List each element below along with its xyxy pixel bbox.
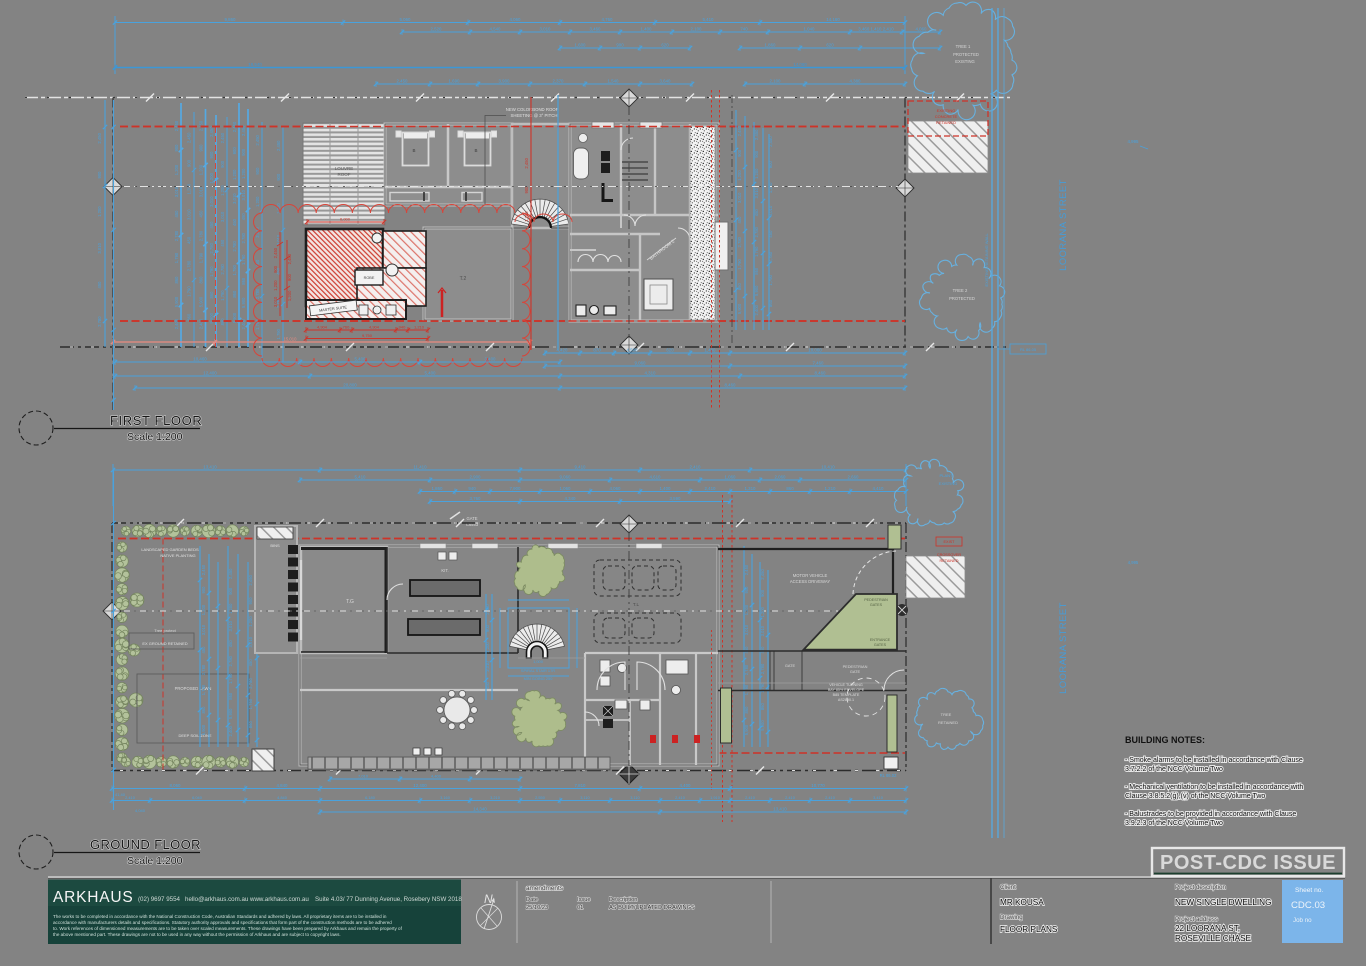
svg-text:PROTECTED: PROTECTED (953, 52, 979, 57)
svg-text:900: 900 (187, 159, 192, 167)
svg-text:2,400: 2,400 (199, 318, 204, 329)
svg-text:3,010: 3,010 (187, 209, 192, 220)
svg-text:1,200: 1,200 (232, 169, 237, 180)
svg-text:Issue: Issue (577, 897, 591, 903)
svg-text:(02) 9697 9554: (02) 9697 9554 (138, 896, 181, 903)
svg-text:1,200: 1,200 (97, 206, 102, 217)
svg-text:5,400: 5,400 (355, 356, 367, 361)
svg-text:3,010: 3,010 (737, 192, 742, 203)
svg-text:2,450: 2,450 (485, 604, 490, 615)
svg-text:860: 860 (241, 277, 246, 285)
svg-text:2,550: 2,550 (535, 795, 546, 800)
svg-text:NATIVE PLANTING: NATIVE PLANTING (160, 553, 195, 558)
svg-text:22 LOORANA ST,: 22 LOORANA ST, (1175, 924, 1240, 933)
svg-text:450: 450 (485, 681, 490, 689)
svg-text:3,640: 3,640 (660, 78, 672, 83)
svg-text:5,900: 5,900 (760, 720, 765, 731)
svg-text:Date: Date (526, 897, 538, 903)
svg-text:1,400: 1,400 (641, 26, 653, 31)
svg-text:CONCRETE: CONCRETE (935, 114, 958, 119)
svg-text:8,460: 8,460 (815, 370, 827, 375)
svg-text:4,904: 4,904 (369, 324, 380, 329)
svg-text:6,000: 6,000 (340, 216, 351, 221)
svg-text:900: 900 (97, 171, 102, 179)
svg-text:LOUVRE: LOUVRE (335, 166, 354, 171)
svg-text:860: 860 (209, 291, 214, 299)
svg-text:- Balustrades to be provided i: - Balustrades to be provided in accordan… (1125, 811, 1296, 818)
svg-text:5,900: 5,900 (199, 296, 204, 307)
svg-text:5,900: 5,900 (744, 724, 749, 735)
svg-text:DEEP SOIL ZONE: DEEP SOIL ZONE (178, 733, 211, 738)
svg-text:13,410: 13,410 (203, 464, 217, 469)
svg-text:4,995: 4,995 (1128, 560, 1139, 565)
svg-text:25/10/23: 25/10/23 (526, 905, 548, 911)
svg-text:1,860: 1,860 (765, 42, 777, 47)
svg-text:860: 860 (228, 692, 233, 700)
svg-text:2,900: 2,900 (470, 474, 482, 479)
svg-text:1,790: 1,790 (232, 264, 237, 275)
svg-text:Scale 1:200: Scale 1:200 (127, 431, 183, 443)
svg-text:1,790: 1,790 (199, 252, 204, 263)
svg-text:Tree protect: Tree protect (154, 628, 176, 633)
svg-text:3,010: 3,010 (174, 186, 179, 197)
svg-text:13,410: 13,410 (773, 806, 787, 811)
svg-text:860: 860 (786, 486, 794, 491)
svg-text:LOORANA STREET: LOORANA STREET (1058, 602, 1069, 694)
svg-text:860: 860 (199, 276, 204, 284)
svg-text:EX GROUND RETAINED: EX GROUND RETAINED (142, 641, 187, 646)
svg-text:1,790: 1,790 (754, 246, 759, 257)
svg-text:2,450: 2,450 (248, 574, 253, 585)
svg-text:7,460: 7,460 (813, 360, 825, 365)
svg-text:10,060: 10,060 (808, 347, 822, 352)
svg-text:41,40: 41,40 (115, 792, 126, 797)
svg-text:4,420: 4,420 (557, 347, 569, 352)
svg-text:AS BUILT/UPDATED DRAWINGS: AS BUILT/UPDATED DRAWINGS (609, 905, 695, 911)
svg-text:2,450: 2,450 (737, 125, 742, 136)
svg-text:940: 940 (468, 486, 476, 491)
svg-text:900: 900 (616, 42, 624, 47)
svg-text:2,410: 2,410 (705, 486, 717, 491)
svg-text:450: 450 (199, 210, 204, 218)
svg-text:3,010: 3,010 (540, 26, 552, 31)
svg-text:900: 900 (287, 273, 292, 281)
svg-text:2,450: 2,450 (744, 564, 749, 575)
svg-text:450: 450 (201, 646, 206, 654)
svg-text:2,780: 2,780 (174, 230, 179, 241)
svg-text:BUILDING NOTES:: BUILDING NOTES: (1125, 735, 1205, 745)
svg-text:SHEETING @ 3° PITCH: SHEETING @ 3° PITCH (511, 113, 558, 118)
svg-text:ACCESS DRIVEWAY: ACCESS DRIVEWAY (790, 579, 830, 584)
svg-text:9,860: 9,860 (225, 17, 237, 22)
svg-text:10,460: 10,460 (193, 356, 207, 361)
svg-text:EXISTING: EXISTING (955, 59, 975, 64)
svg-text:2,450: 2,450 (760, 569, 765, 580)
svg-text:4,410: 4,410 (873, 486, 885, 491)
svg-text:2,100: 2,100 (691, 26, 703, 31)
svg-text:4,060: 4,060 (610, 486, 622, 491)
svg-text:10,770: 10,770 (811, 783, 825, 788)
svg-text:1,200: 1,200 (174, 164, 179, 175)
svg-text:1,200: 1,200 (287, 290, 292, 301)
svg-text:450: 450 (760, 646, 765, 654)
svg-text:870: 870 (593, 347, 601, 352)
svg-text:5,900: 5,900 (241, 297, 246, 308)
svg-text:3,010: 3,010 (97, 242, 102, 253)
svg-text:860: 860 (174, 276, 179, 284)
svg-text:5,900: 5,900 (737, 303, 742, 314)
svg-text:Project address: Project address (1175, 916, 1218, 923)
svg-text:900: 900 (209, 151, 214, 159)
svg-text:3,210: 3,210 (490, 795, 501, 800)
svg-text:B85 TEMPLATE: B85 TEMPLATE (833, 693, 860, 697)
svg-text:9,060: 9,060 (560, 474, 572, 479)
svg-text:450: 450 (754, 209, 759, 217)
svg-text:3.9.2.3 of the NCC Volume Two: 3.9.2.3 of the NCC Volume Two (1125, 820, 1223, 827)
svg-text:3,010: 3,010 (248, 636, 253, 647)
svg-text:2,450: 2,450 (201, 564, 206, 575)
svg-text:RETAINED: RETAINED (940, 559, 959, 563)
svg-text:900: 900 (768, 161, 773, 169)
svg-text:940: 940 (399, 324, 406, 329)
svg-text:GATES: GATES (870, 603, 883, 607)
svg-text:1,790: 1,790 (187, 286, 192, 297)
svg-text:4,400: 4,400 (680, 783, 692, 788)
svg-text:Suite 4.03/ 77 Dunning Avenue,: Suite 4.03/ 77 Dunning Avenue, Rosebery … (315, 896, 462, 903)
svg-text:4,060: 4,060 (510, 17, 522, 22)
svg-text:N: N (484, 892, 493, 906)
svg-text:3,010: 3,010 (228, 620, 233, 631)
svg-text:3,010: 3,010 (241, 189, 246, 200)
svg-text:GATE: GATE (785, 663, 796, 668)
svg-text:860: 860 (754, 267, 759, 275)
svg-text:7,900: 7,900 (510, 486, 522, 491)
svg-text:2,410: 2,410 (690, 464, 702, 469)
svg-text:900: 900 (232, 147, 237, 155)
svg-text:2,400: 2,400 (241, 318, 246, 329)
svg-text:3.7.2.2 of the NCC Volume Two: 3.7.2.2 of the NCC Volume Two (1125, 766, 1223, 773)
svg-text:6,040: 6,040 (192, 795, 203, 800)
svg-text:T.L: T.L (633, 602, 640, 607)
svg-text:2,410: 2,410 (125, 795, 136, 800)
svg-text:9,060: 9,060 (635, 360, 647, 365)
svg-text:3,010: 3,010 (232, 193, 237, 204)
svg-text:900: 900 (760, 589, 765, 597)
svg-text:EXISTING: EXISTING (939, 481, 958, 486)
svg-text:GATE: GATE (850, 669, 861, 674)
svg-text:4,904: 4,904 (317, 324, 328, 329)
svg-text:LOORANA STREET: LOORANA STREET (1058, 179, 1069, 271)
svg-text:450: 450 (248, 659, 253, 667)
svg-text:ENTRANCE: ENTRANCE (870, 638, 891, 642)
svg-text:3,160: 3,160 (440, 795, 451, 800)
svg-text:2,780: 2,780 (737, 236, 742, 247)
svg-text:2,520: 2,520 (431, 26, 443, 31)
svg-text:2,100: 2,100 (770, 78, 782, 83)
svg-text:900: 900 (248, 597, 253, 605)
svg-text:hello@arkhaus.com.au: hello@arkhaus.com.au (185, 896, 249, 903)
svg-text:2,450: 2,450 (768, 136, 773, 147)
svg-text:860: 860 (201, 706, 206, 714)
svg-text:1,200: 1,200 (524, 211, 529, 222)
svg-text:1,540: 1,540 (608, 78, 620, 83)
svg-text:450: 450 (241, 213, 246, 221)
svg-text:1,040: 1,040 (804, 26, 816, 31)
svg-text:4,840: 4,840 (277, 783, 289, 788)
svg-text:TREE: TREE (941, 712, 952, 717)
svg-text:The works to be completed in a: The works to be completed in accordance … (53, 914, 387, 919)
svg-text:PLANT: PLANT (940, 473, 953, 478)
svg-text:PEDESTRIAN: PEDESTRIAN (864, 598, 888, 602)
svg-text:2,660: 2,660 (848, 474, 860, 479)
svg-text:TREE 1: TREE 1 (956, 44, 971, 49)
svg-text:450: 450 (209, 221, 214, 229)
svg-text:VEHICLE TURNING: VEHICLE TURNING (829, 683, 863, 687)
svg-text:Project description: Project description (1175, 884, 1226, 891)
svg-text:CROSSOVER: CROSSOVER (937, 553, 962, 557)
svg-text:2,450: 2,450 (524, 157, 529, 168)
svg-text:RETAINED: RETAINED (936, 120, 956, 125)
svg-text:1,790: 1,790 (241, 254, 246, 265)
svg-text:1,790: 1,790 (276, 328, 281, 339)
svg-text:FIRST FLOOR: FIRST FLOOR (110, 413, 202, 428)
svg-text:7,810: 7,810 (575, 783, 587, 788)
svg-text:2,780: 2,780 (241, 232, 246, 243)
svg-text:7,010: 7,010 (358, 773, 369, 778)
svg-text:3,110: 3,110 (580, 795, 590, 800)
svg-text:18,540: 18,540 (248, 62, 262, 67)
svg-text:900: 900 (744, 586, 749, 594)
svg-text:3,460: 3,460 (590, 26, 602, 31)
svg-text:3,010: 3,010 (744, 624, 749, 635)
svg-text:6,180: 6,180 (365, 795, 376, 800)
svg-text:2,400: 2,400 (228, 725, 233, 736)
svg-text:2,450: 2,450 (97, 132, 102, 143)
svg-text:4,040: 4,040 (135, 808, 146, 813)
svg-text:12,400: 12,400 (203, 370, 217, 375)
svg-text:- Smoke alarms to be installed: - Smoke alarms to be installed in accord… (1125, 757, 1303, 764)
svg-text:1,200: 1,200 (760, 606, 765, 617)
svg-text:2,450: 2,450 (754, 129, 759, 140)
svg-text:1,200: 1,200 (273, 280, 278, 291)
svg-text:BAY 85% ENVELOPE: BAY 85% ENVELOPE (828, 688, 865, 692)
svg-text:900: 900 (273, 265, 278, 273)
svg-text:4,310: 4,310 (645, 370, 657, 375)
svg-text:5,900: 5,900 (228, 708, 233, 719)
svg-text:5,400: 5,400 (425, 370, 437, 375)
svg-text:2,410: 2,410 (675, 795, 686, 800)
svg-text:4,060: 4,060 (916, 26, 928, 31)
svg-text:CDC.03: CDC.03 (1291, 900, 1325, 911)
svg-text:amendments: amendments (526, 885, 563, 892)
svg-text:2,450: 2,450 (220, 132, 225, 143)
svg-text:860: 860 (248, 721, 253, 729)
svg-text:1,200: 1,200 (754, 168, 759, 179)
svg-text:2,780: 2,780 (232, 240, 237, 251)
svg-text:NEW SINGLE DWELLING: NEW SINGLE DWELLING (1175, 898, 1271, 907)
svg-text:1,200: 1,200 (201, 604, 206, 615)
svg-text:1,860: 1,860 (432, 486, 444, 491)
svg-text:2,450: 2,450 (187, 132, 192, 143)
svg-text:4,760: 4,760 (602, 17, 614, 22)
svg-text:450: 450 (768, 230, 773, 238)
svg-text:860: 860 (737, 283, 742, 291)
svg-text:1,200: 1,200 (485, 642, 490, 653)
svg-text:900: 900 (228, 587, 233, 595)
svg-text:1,200: 1,200 (187, 183, 192, 194)
svg-text:900: 900 (276, 173, 281, 181)
svg-text:3,010: 3,010 (760, 625, 765, 636)
svg-text:4,610: 4,610 (650, 474, 662, 479)
svg-text:1,000: 1,000 (533, 659, 544, 664)
svg-text:5,900: 5,900 (754, 285, 759, 296)
svg-text:Scale 1:200: Scale 1:200 (127, 855, 183, 867)
svg-text:2,060: 2,060 (775, 474, 787, 479)
svg-text:AS2890.1: AS2890.1 (838, 698, 854, 702)
svg-text:1,200: 1,200 (768, 182, 773, 193)
svg-text:860: 860 (768, 299, 773, 307)
svg-text:BINS: BINS (270, 543, 280, 548)
svg-text:3,460 1,410 2,410: 3,460 1,410 2,410 (858, 26, 894, 31)
svg-text:2,410: 2,410 (745, 795, 756, 800)
svg-text:1,200: 1,200 (255, 196, 260, 207)
svg-text:1,400: 1,400 (705, 347, 717, 352)
svg-text:2,780: 2,780 (754, 226, 759, 237)
svg-text:1,200: 1,200 (199, 164, 204, 175)
svg-text:www.arkhaus.com.au: www.arkhaus.com.au (249, 896, 309, 903)
svg-text:4,400: 4,400 (431, 773, 442, 778)
svg-text:1,200: 1,200 (248, 616, 253, 627)
svg-text:1,790: 1,790 (228, 673, 233, 684)
svg-text:B: B (474, 148, 477, 153)
svg-text:15,010: 15,010 (284, 336, 297, 341)
svg-text:5,900: 5,900 (209, 312, 214, 323)
svg-text:1,060: 1,060 (560, 486, 572, 491)
svg-text:RL 86.05: RL 86.05 (1020, 347, 1037, 352)
svg-text:2,780: 2,780 (201, 664, 206, 675)
svg-text:RETAINED: RETAINED (938, 720, 958, 725)
svg-text:5,410: 5,410 (355, 474, 367, 479)
svg-text:14,160: 14,160 (826, 17, 840, 22)
svg-text:RL 86.02: RL 86.02 (880, 773, 898, 778)
svg-text:3,110: 3,110 (630, 795, 640, 800)
svg-text:B: B (412, 148, 415, 153)
svg-text:SPIRAL STAIR 17R: SPIRAL STAIR 17R (521, 668, 555, 673)
svg-text:1,200: 1,200 (241, 168, 246, 179)
svg-text:4,340: 4,340 (565, 496, 577, 501)
svg-text:Clause 3.8.5.2(g),(v) of the N: Clause 3.8.5.2(g),(v) of the NCC Volume … (1125, 793, 1265, 800)
svg-text:2,780: 2,780 (187, 260, 192, 271)
svg-text:8,460: 8,460 (725, 382, 737, 387)
svg-text:Description: Description (609, 897, 637, 903)
svg-text:1,310: 1,310 (745, 486, 757, 491)
svg-text:3,010: 3,010 (201, 624, 206, 635)
svg-text:8,060: 8,060 (170, 783, 182, 788)
svg-text:900: 900 (737, 149, 742, 157)
svg-text:2,450: 2,450 (276, 140, 281, 151)
svg-text:9,750: 9,750 (362, 333, 373, 338)
svg-text:3,760: 3,760 (470, 496, 482, 501)
svg-text:1,790: 1,790 (201, 684, 206, 695)
svg-text:860: 860 (760, 703, 765, 711)
svg-text:20,800: 20,800 (343, 382, 357, 387)
svg-text:1,790: 1,790 (744, 684, 749, 695)
svg-text:the above mentioned part. Thes: the above mentioned part. These drawings… (53, 932, 341, 937)
svg-text:2,370: 2,370 (553, 78, 565, 83)
svg-text:3,010: 3,010 (485, 661, 490, 672)
svg-text:EXISTING: EXISTING (937, 108, 956, 113)
svg-text:1,400: 1,400 (660, 486, 672, 491)
svg-text:2,780: 2,780 (744, 664, 749, 675)
svg-text:14,060: 14,060 (793, 62, 807, 67)
svg-text:620: 620 (666, 347, 674, 352)
svg-text:KIT.: KIT. (441, 568, 448, 573)
svg-text:1,060: 1,060 (725, 474, 737, 479)
svg-text:3,010: 3,010 (768, 205, 773, 216)
svg-text:T.G: T.G (346, 599, 354, 605)
svg-text:860: 860 (232, 290, 237, 298)
svg-text:900: 900 (485, 624, 490, 632)
svg-text:LANDSCAPED GARDEN BEDS: LANDSCAPED GARDEN BEDS (141, 547, 199, 552)
svg-text:2,780: 2,780 (220, 263, 225, 274)
svg-text:10,410: 10,410 (821, 464, 835, 469)
svg-text:1,790: 1,790 (737, 259, 742, 270)
svg-text:3,900: 3,900 (499, 78, 511, 83)
svg-text:FLOOR PLANS: FLOOR PLANS (1000, 925, 1058, 934)
svg-text:5,900: 5,900 (174, 296, 179, 307)
svg-text:740: 740 (740, 26, 748, 31)
svg-text:2,780: 2,780 (248, 678, 253, 689)
svg-text:1,790: 1,790 (220, 290, 225, 301)
svg-text:1,600: 1,600 (575, 42, 587, 47)
svg-text:POST-CDC ISSUE: POST-CDC ISSUE (1160, 852, 1336, 874)
svg-text:4,580: 4,580 (627, 347, 639, 352)
svg-text:TREE 2: TREE 2 (953, 288, 968, 293)
svg-text:1,200: 1,200 (228, 603, 233, 614)
svg-text:1,790: 1,790 (248, 698, 253, 709)
svg-text:Job no: Job no (1293, 917, 1312, 924)
svg-text:11,410: 11,410 (413, 464, 427, 469)
svg-text:900: 900 (174, 144, 179, 152)
svg-text:2,780: 2,780 (228, 655, 233, 666)
svg-text:2,400: 2,400 (174, 318, 179, 329)
svg-text:2,780: 2,780 (209, 242, 214, 253)
svg-text:14,340: 14,340 (473, 806, 487, 811)
svg-text:GROUND FLOOR: GROUND FLOOR (90, 837, 201, 852)
svg-text:450: 450 (232, 218, 237, 226)
svg-text:1,910: 1,910 (710, 795, 721, 800)
svg-text:3,590: 3,590 (670, 496, 682, 501)
svg-text:4,840: 4,840 (277, 795, 288, 800)
svg-text:1,690: 1,690 (449, 78, 461, 83)
svg-text:NEW COLORBOND ROOF: NEW COLORBOND ROOF (506, 107, 559, 112)
svg-text:3,010: 3,010 (754, 187, 759, 198)
svg-text:- Mechanical ventilation to be: - Mechanical ventilation to be installed… (1125, 784, 1303, 791)
svg-text:860: 860 (187, 313, 192, 321)
svg-text:Sheet no.: Sheet no. (1295, 887, 1323, 894)
svg-text:900: 900 (220, 160, 225, 168)
svg-text:MR KOUSA: MR KOUSA (1000, 898, 1044, 907)
svg-text:9,410: 9,410 (575, 464, 587, 469)
svg-text:2,450: 2,450 (228, 568, 233, 579)
svg-text:2,450: 2,450 (255, 134, 260, 145)
svg-text:860: 860 (744, 706, 749, 714)
svg-text:2,780: 2,780 (199, 230, 204, 241)
svg-text:3,010: 3,010 (220, 211, 225, 222)
svg-text:GATES: GATES (874, 643, 887, 647)
svg-text:620: 620 (826, 42, 834, 47)
svg-text:5,900: 5,900 (201, 724, 206, 735)
